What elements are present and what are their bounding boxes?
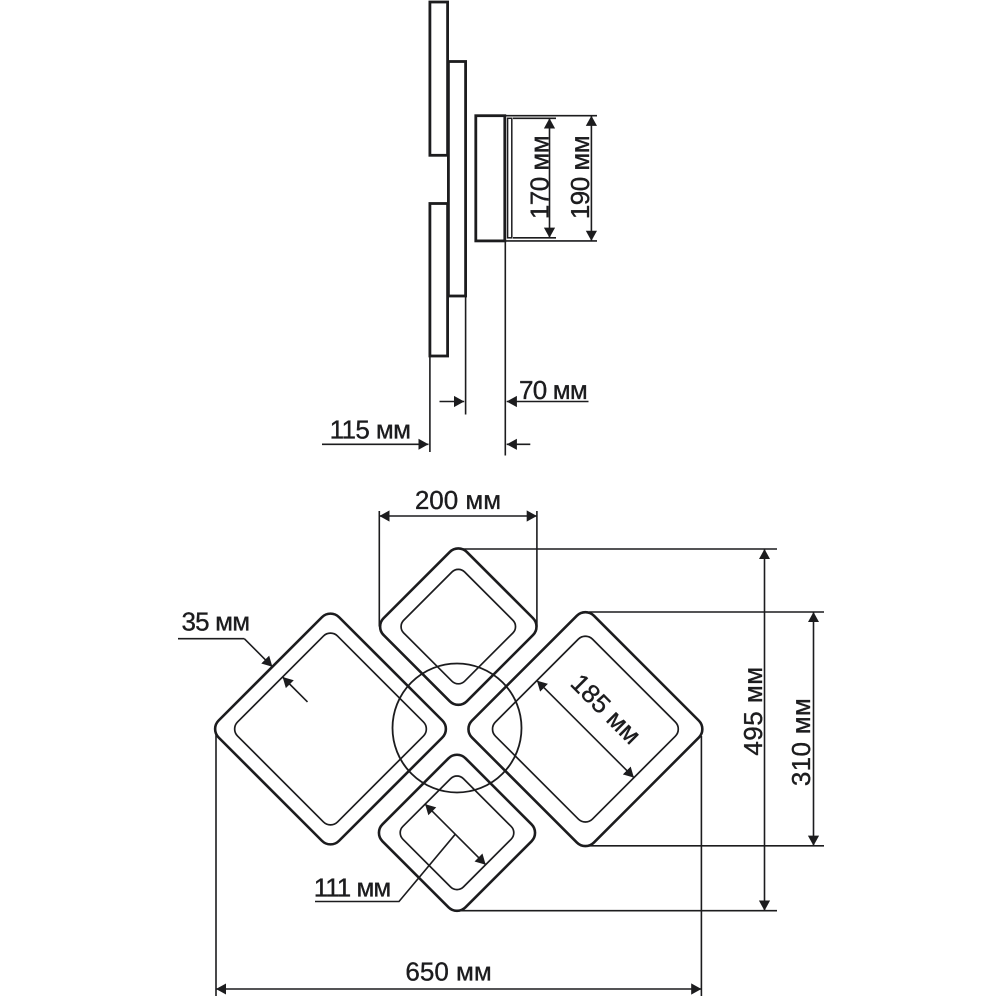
svg-text:70 мм: 70 мм (519, 375, 587, 405)
svg-text:190 мм: 190 мм (565, 136, 595, 219)
svg-text:115 мм: 115 мм (330, 415, 411, 445)
svg-text:185 мм: 185 мм (565, 668, 647, 750)
svg-text:200 мм: 200 мм (415, 485, 501, 515)
svg-text:650 мм: 650 мм (405, 957, 491, 987)
svg-text:35 мм: 35 мм (181, 607, 249, 637)
svg-text:111 мм: 111 мм (314, 873, 391, 903)
svg-text:495 мм: 495 мм (738, 666, 768, 755)
svg-text:310 мм: 310 мм (786, 698, 816, 786)
svg-text:170 мм: 170 мм (525, 136, 555, 219)
